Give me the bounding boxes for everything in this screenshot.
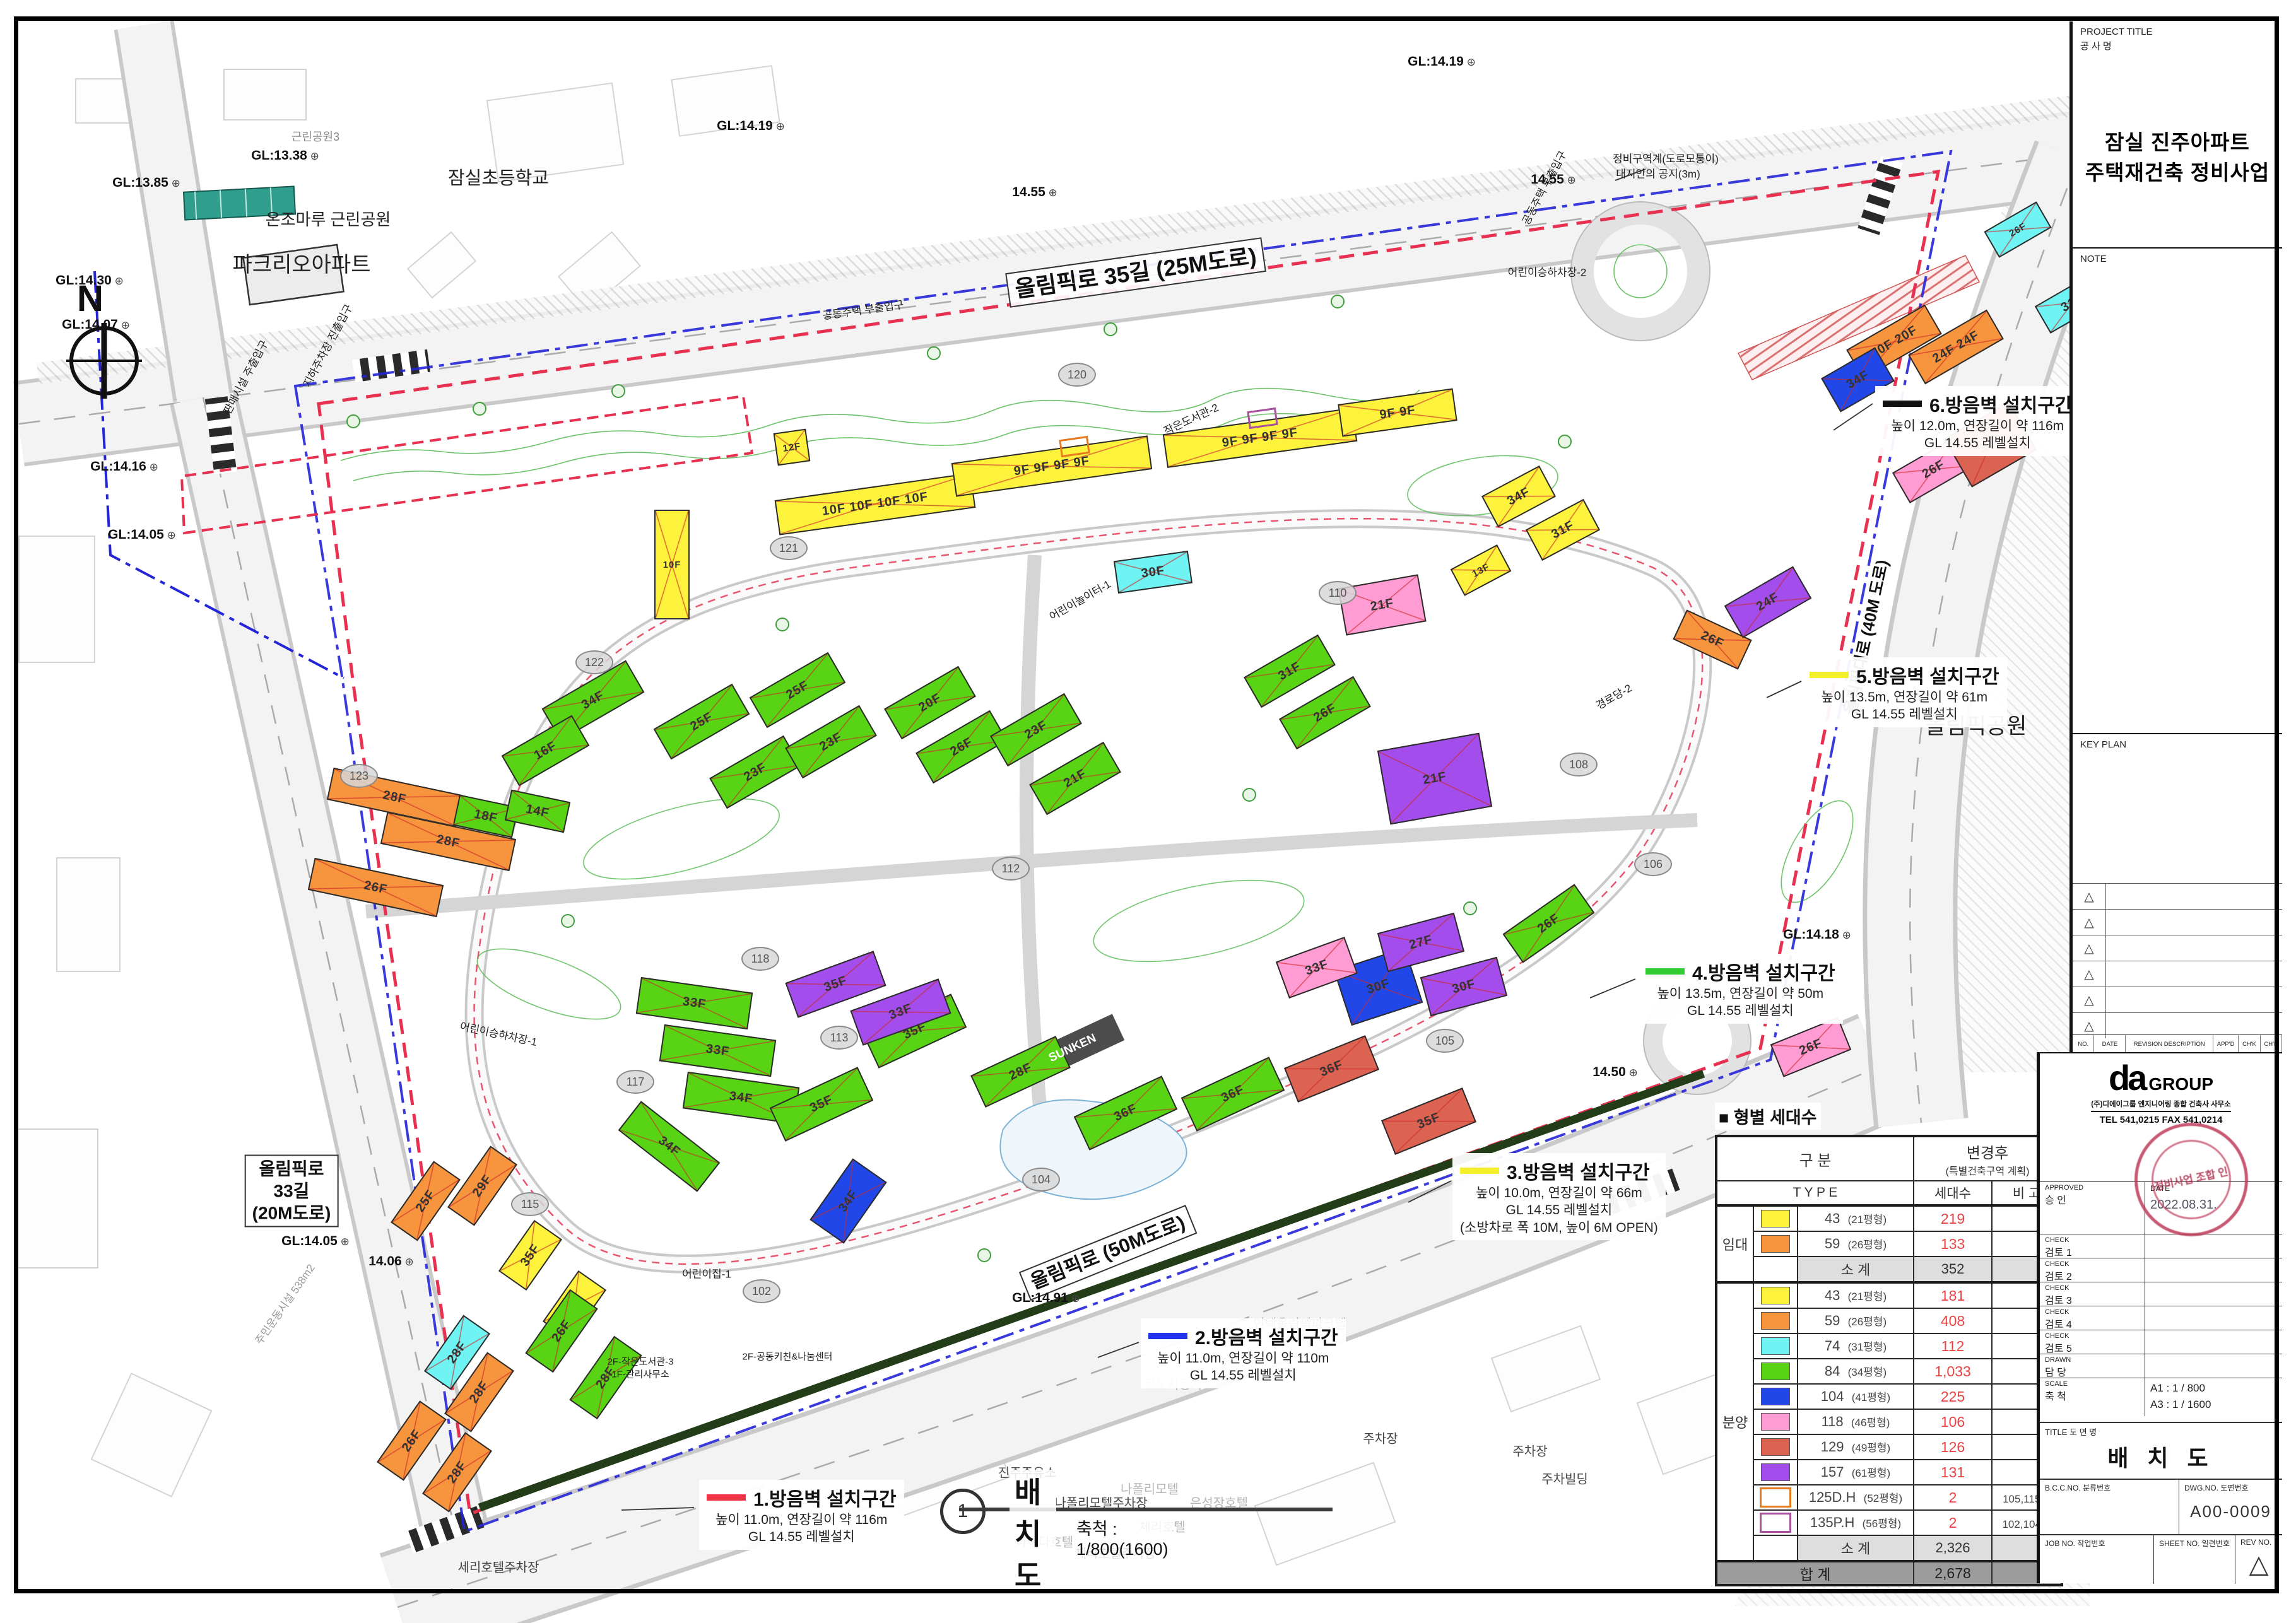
rev-cell: REV NO. △ <box>2235 1535 2282 1584</box>
revision-triangle-icon: △ <box>2249 1550 2269 1579</box>
type-color-swatch <box>1760 1513 1791 1533</box>
approval-row: CHECK검토 1 <box>2040 1234 2282 1258</box>
total-label: 합 계 <box>1716 1561 1914 1585</box>
approval-stamp: 정비사업 조합 인 <box>2134 1123 2248 1236</box>
col-type: T Y P E <box>1716 1181 1914 1205</box>
barrier-line-swatch <box>1645 968 1685 975</box>
barrier-line-swatch <box>1460 1168 1499 1174</box>
revision-rows: △△△△△△ <box>2073 883 2282 1038</box>
unit-count-table-grid: 구 분변경후(특별건축구역 계획)T Y P E세대수비 고임대43 (21평형… <box>1715 1135 2063 1586</box>
type-color-swatch <box>1761 1388 1790 1405</box>
type-color-swatch <box>1761 1210 1790 1228</box>
view-number: 1 <box>940 1489 986 1534</box>
title-block-top: PROJECT TITLE 공 사 명 잠실 진주아파트 주택재건축 정비사업 … <box>2069 21 2282 1052</box>
revision-header-cell: CH'K <box>2239 1035 2260 1053</box>
unit-count: 219 <box>1914 1205 1992 1231</box>
bcc-dwg-row: B.C.C.NO. 분류번호 DWG.NO. 도면번호 A00-0009 <box>2040 1479 2282 1535</box>
unit-count: 126 <box>1914 1434 1992 1460</box>
revision-triangle-icon: △ <box>2073 935 2106 961</box>
type-color-swatch <box>1761 1312 1790 1330</box>
revision-row: △ <box>2073 987 2282 1012</box>
barrier-line-swatch <box>1883 401 1922 407</box>
unit-count: 2 <box>1914 1485 1992 1510</box>
dwg-label: DWG.NO. 도면번호 <box>2184 1482 2277 1493</box>
noise-barrier-callout: 3.방음벽 설치구간높이 10.0m, 연장길이 약 66mGL 14.55 레… <box>1452 1153 1666 1240</box>
type-color-swatch <box>1761 1362 1790 1380</box>
approval-row: CHECK검토 4 <box>2040 1306 2282 1330</box>
unit-count: 106 <box>1914 1409 1992 1434</box>
col-group: 구 분 <box>1716 1136 1914 1181</box>
dwg-number: A00-0009 <box>2184 1502 2277 1521</box>
type-color-swatch <box>1761 1438 1790 1456</box>
key-plan-label: KEY PLAN <box>2080 739 2126 750</box>
unit-table-title: ■ 형별 세대수 <box>1715 1103 1821 1130</box>
group-label: 임대 <box>1716 1205 1753 1282</box>
unit-count: 225 <box>1914 1384 1992 1409</box>
note-label: NOTE <box>2080 254 2107 264</box>
revision-triangle-icon: △ <box>2073 910 2106 935</box>
job-label: JOB NO. 작업번호 <box>2040 1535 2154 1584</box>
unit-count-table: ■ 형별 세대수 구 분변경후(특별건축구역 계획)T Y P E세대수비 고임… <box>1715 1103 2063 1586</box>
job-sheet-rev-row: JOB NO. 작업번호 SHEET NO. 일련번호 REV NO. △ <box>2040 1534 2282 1584</box>
revision-triangle-icon: △ <box>2073 884 2106 909</box>
company-block: daGROUP (주)디에이그룹 엔지니어링 종합 건축사 사무소 TEL 54… <box>2040 1053 2282 1125</box>
noise-barrier-callout: 4.방음벽 설치구간높이 13.5m, 연장길이 약 50mGL 14.55 레… <box>1638 954 1843 1024</box>
type-label: 43 (21평형) <box>1798 1205 1914 1231</box>
barrier-line-swatch <box>707 1494 746 1501</box>
drawing-title-section: TITLE 도 면 명 배 치 도 <box>2040 1422 2282 1480</box>
company-name: (주)디에이그룹 엔지니어링 종합 건축사 사무소 <box>2091 1099 2230 1112</box>
bcc-label: B.C.C.NO. 분류번호 <box>2040 1480 2179 1535</box>
type-color-swatch <box>1760 1487 1791 1508</box>
revision-row: △ <box>2073 883 2282 909</box>
approval-row: CHECK검토 3 <box>2040 1282 2282 1306</box>
company-logo-sub: GROUP <box>2148 1074 2213 1094</box>
unit-count: 181 <box>1914 1282 1992 1308</box>
project-title-label-kr: 공 사 명 <box>2080 39 2112 52</box>
type-label: 43 (21평형) <box>1798 1282 1914 1308</box>
revision-row: △ <box>2073 909 2282 935</box>
unit-count: 408 <box>1914 1308 1992 1333</box>
type-color-swatch <box>1761 1235 1790 1253</box>
type-label: 74 (31평형) <box>1798 1333 1914 1359</box>
noise-barrier-callout: 2.방음벽 설치구간높이 11.0m, 연장길이 약 110mGL 14.55 … <box>1141 1318 1346 1388</box>
unit-count: 2 <box>1914 1510 1992 1535</box>
unit-count: 1,033 <box>1914 1359 1992 1384</box>
rev-label: REV NO. <box>2240 1538 2271 1547</box>
type-label: 59 (26평형) <box>1798 1231 1914 1257</box>
barrier-line-swatch <box>1810 672 1849 678</box>
type-color-swatch <box>1761 1463 1790 1481</box>
type-color-swatch <box>1761 1287 1790 1304</box>
view-title-text: 배 치 도 <box>1010 1470 1056 1595</box>
type-label: 59 (26평형) <box>1798 1308 1914 1333</box>
dwg-cell: DWG.NO. 도면번호 A00-0009 <box>2179 1480 2282 1535</box>
revision-row: △ <box>2073 961 2282 987</box>
approval-row: DRAWN담 당 <box>2040 1354 2282 1378</box>
revision-header-cell: NO. <box>2073 1035 2094 1053</box>
group-label: 분양 <box>1716 1282 1753 1561</box>
type-label: 129 (49평형) <box>1798 1434 1914 1460</box>
project-title: 잠실 진주아파트 주택재건축 정비사업 <box>2073 127 2282 188</box>
company-logo: da <box>2109 1058 2145 1098</box>
title-label: TITLE 도 면 명 <box>2040 1423 2282 1440</box>
type-label: 104 (41평형) <box>1798 1384 1914 1409</box>
type-label: 84 (34평형) <box>1798 1359 1914 1384</box>
drawing-title: 배 치 도 <box>2040 1440 2282 1473</box>
unit-count: 133 <box>1914 1231 1992 1257</box>
type-label: 118 (46평형) <box>1798 1409 1914 1434</box>
unit-count: 131 <box>1914 1460 1992 1485</box>
revision-header-cell: REVISION DESCRIPTION <box>2126 1035 2213 1053</box>
scale-row: SCALE축 척A1 : 1 / 800A3 : 1 / 1600 <box>2040 1378 2282 1416</box>
subtotal-label: 소 계 <box>1798 1257 1914 1282</box>
unit-count: 352 <box>1914 1257 1992 1282</box>
type-color-swatch <box>1761 1337 1790 1355</box>
col-units: 세대수 <box>1914 1181 1992 1205</box>
type-label: 157 (61평형) <box>1798 1460 1914 1485</box>
company-tel: TEL 541,0215 FAX 541,0214 <box>2040 1115 2282 1125</box>
noise-barrier-callout: 5.방음벽 설치구간높이 13.5m, 연장길이 약 61mGL 14.55 레… <box>1802 657 2007 727</box>
total-units: 2,678 <box>1914 1561 1992 1585</box>
unit-count: 112 <box>1914 1333 1992 1359</box>
revision-header-cell: DATE <box>2094 1035 2126 1053</box>
type-color-swatch <box>1761 1413 1790 1431</box>
type-label: 135P.H (56평형) <box>1798 1510 1914 1535</box>
sheet-label: SHEET NO. 일련번호 <box>2154 1535 2235 1584</box>
noise-barrier-callout: 1.방음벽 설치구간높이 11.0m, 연장길이 약 116mGL 14.55 … <box>699 1480 904 1550</box>
project-title-label: PROJECT TITLE <box>2080 26 2152 37</box>
approval-row: CHECK검토 2 <box>2040 1258 2282 1282</box>
revision-row: △ <box>2073 935 2282 961</box>
approval-row: CHECK검토 5 <box>2040 1330 2282 1354</box>
noise-barrier-callout: 6.방음벽 설치구간높이 12.0m, 연장길이 약 116mGL 14.55 … <box>1875 386 2080 456</box>
revision-header: NO.DATEREVISION DESCRIPTIONAPP'DCH'KCH'K <box>2073 1034 2282 1053</box>
revision-triangle-icon: △ <box>2073 961 2106 987</box>
revision-header-cell: CH'K <box>2261 1035 2282 1053</box>
subtotal-label: 소 계 <box>1798 1535 1914 1561</box>
divider <box>2073 733 2282 734</box>
barrier-line-swatch <box>1148 1333 1187 1339</box>
title-block-bottom: daGROUP (주)디에이그룹 엔지니어링 종합 건축사 사무소 TEL 54… <box>2037 1052 2282 1583</box>
unit-count: 2,326 <box>1914 1535 1992 1561</box>
revision-triangle-icon: △ <box>2073 987 2106 1012</box>
revision-header-cell: APP'D <box>2213 1035 2239 1053</box>
divider <box>2073 247 2282 249</box>
type-label: 125D.H (52평형) <box>1798 1485 1914 1510</box>
view-scale-text: 축척 : 1/800(1600) <box>1073 1515 1172 1559</box>
